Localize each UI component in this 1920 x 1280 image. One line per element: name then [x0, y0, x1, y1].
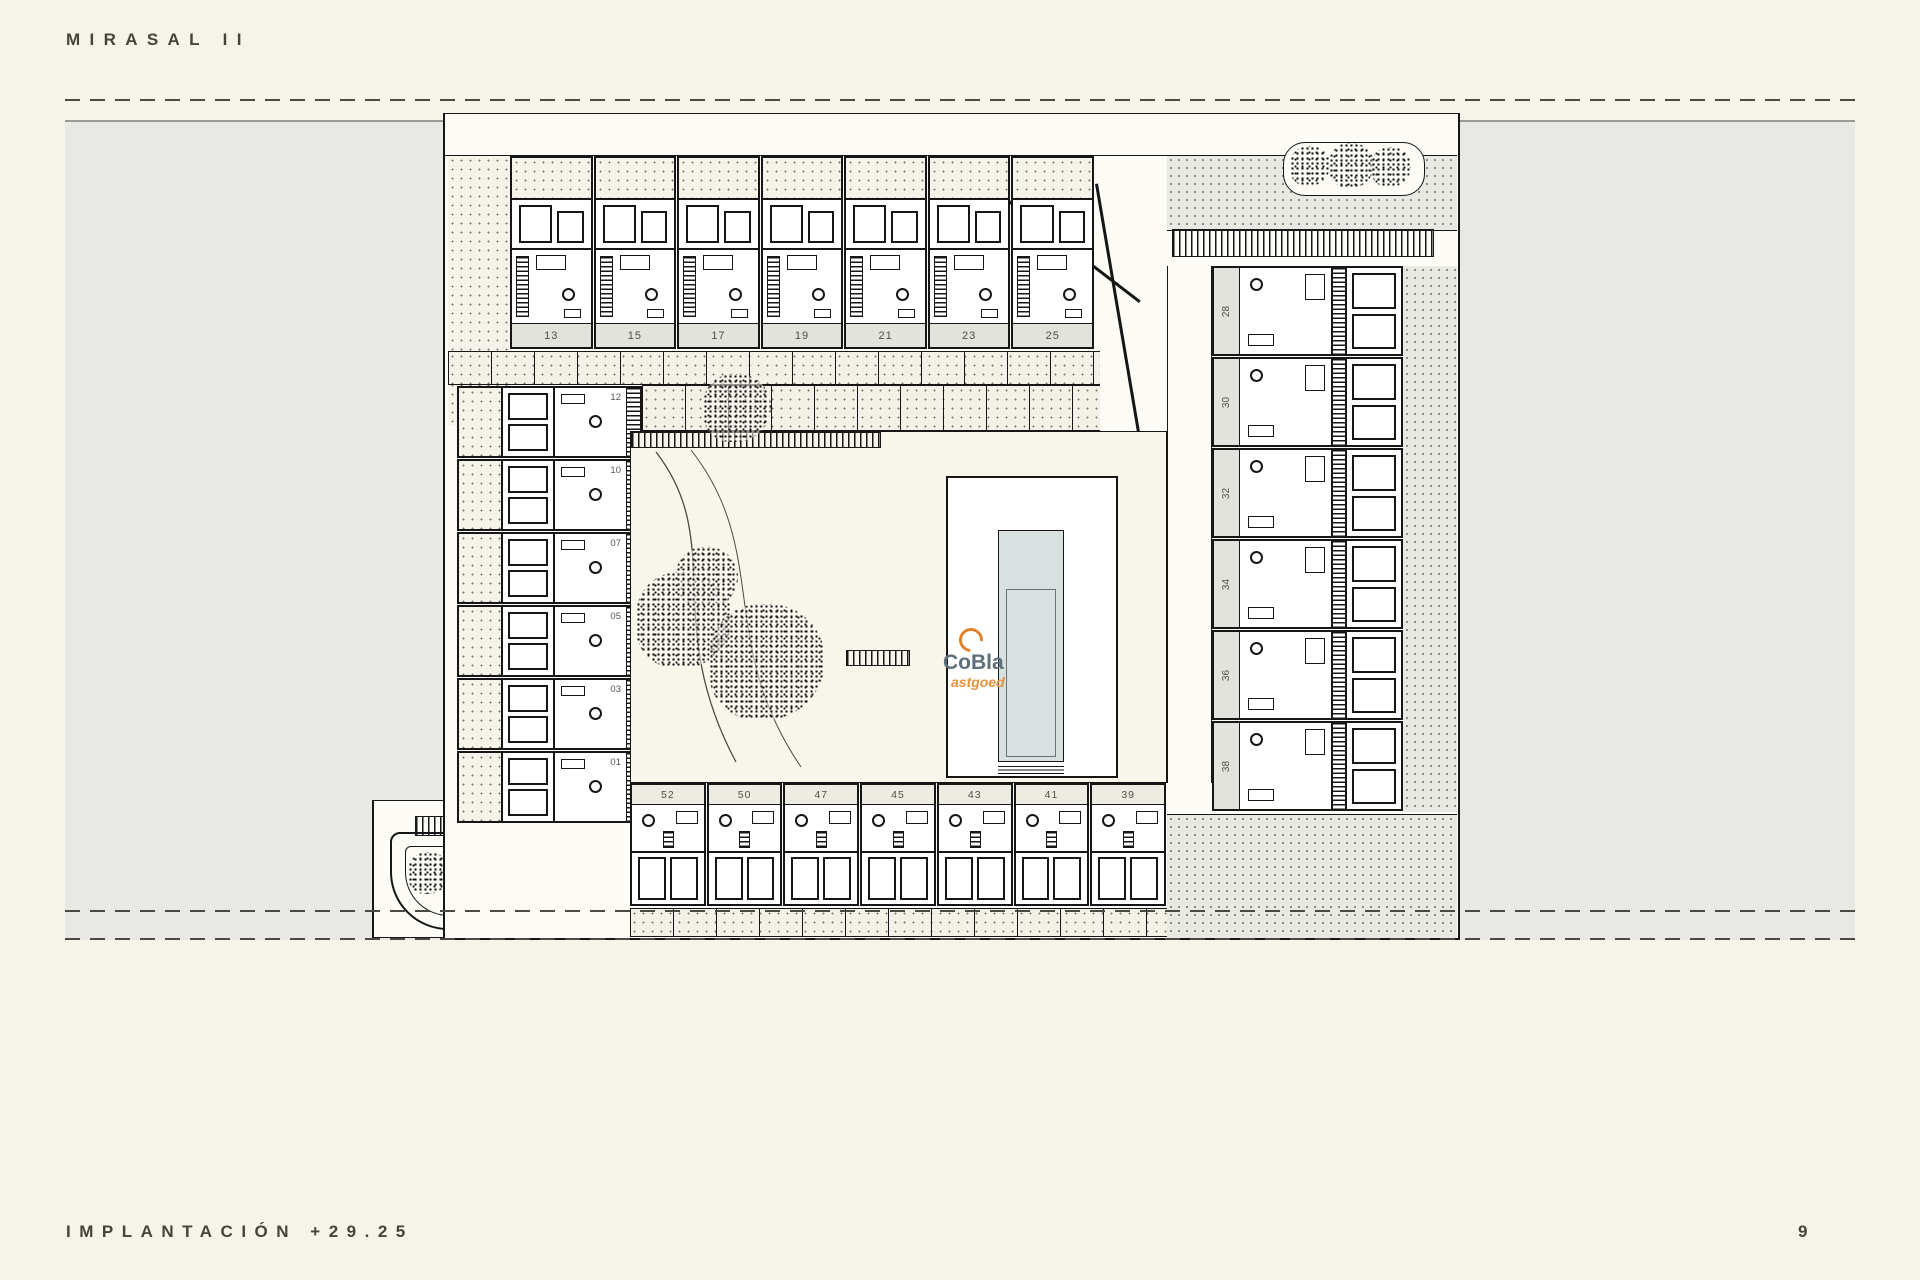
unit-living [709, 805, 781, 853]
unit-floorplan: 01 [457, 751, 642, 823]
unit-number: 28 [1221, 305, 1232, 316]
stairs-icon [739, 831, 750, 848]
table-icon [562, 288, 575, 301]
unit-column-right: 28 30 [1212, 266, 1403, 812]
unit-living [679, 250, 758, 323]
watermark-brand: CoBla [943, 652, 1005, 674]
stairs-icon [1333, 632, 1347, 718]
sofa-icon [1065, 309, 1082, 318]
bathroom [1037, 255, 1067, 270]
unit-floorplan: 15 [594, 156, 677, 349]
unit-bedrooms [1347, 268, 1401, 354]
sofa-icon [814, 309, 831, 318]
table-icon [1250, 369, 1263, 382]
stairs-icon [683, 256, 696, 317]
unit-bedrooms [709, 853, 781, 904]
unit-living [632, 805, 704, 853]
unit-number: 39 [1121, 789, 1135, 801]
unit-parking [459, 461, 503, 529]
unit-bedrooms [1347, 359, 1401, 445]
unit-patio [596, 158, 675, 200]
unit-number: 13 [544, 330, 558, 342]
unit-number: 36 [1221, 669, 1232, 680]
bathroom [1136, 811, 1158, 824]
unit-number: 15 [628, 330, 642, 342]
boundary-dashed-line-bottom-2 [65, 938, 1855, 940]
unit-bedrooms [512, 200, 591, 250]
stairs-icon [1333, 359, 1347, 445]
unit-floorplan: 45 [860, 783, 936, 906]
unit-patio [512, 158, 591, 200]
unit-floorplan: 21 [844, 156, 927, 349]
unit-bedrooms [763, 200, 842, 250]
unit-bedrooms [632, 853, 704, 904]
stairs-icon [893, 831, 904, 848]
unit-number-band: 39 [1092, 785, 1164, 805]
stairs-icon [1333, 450, 1347, 536]
table-icon [589, 561, 602, 574]
unit-number: 25 [1046, 330, 1060, 342]
unit-bedrooms [930, 200, 1009, 250]
unit-bedrooms [503, 607, 555, 675]
sofa-icon [564, 309, 581, 318]
stairs-icon [663, 831, 674, 848]
table-icon [795, 814, 808, 827]
unit-living [555, 534, 626, 602]
bathroom [536, 255, 566, 270]
bathroom [829, 811, 851, 824]
unit-bedrooms [596, 200, 675, 250]
unit-number-band: 30 [1214, 359, 1240, 445]
unit-number-band: 32 [1214, 450, 1240, 536]
unit-floorplan: 52 [630, 783, 706, 906]
stairs-icon [1123, 831, 1134, 848]
unit-living [763, 250, 842, 323]
unit-floorplan: 23 [928, 156, 1011, 349]
unit-number-band: 23 [930, 323, 1009, 347]
diagonal-boundary-line [1095, 184, 1142, 449]
bathroom [1305, 365, 1325, 391]
unit-number: 43 [968, 789, 982, 801]
bathroom [676, 811, 698, 824]
bathroom [1059, 811, 1081, 824]
unit-bedrooms [679, 200, 758, 250]
pergola-hatch-top-right [1172, 229, 1434, 257]
unit-number-band: 15 [596, 323, 675, 347]
stairs-icon [600, 256, 613, 317]
unit-living [1240, 450, 1333, 536]
unit-floorplan: 07 [457, 532, 642, 604]
bathroom [1305, 547, 1325, 573]
driveway-band-upper [448, 351, 1100, 385]
unit-living [1013, 250, 1092, 323]
unit-number-band: 45 [862, 785, 934, 805]
kitchen [1248, 789, 1274, 801]
unit-living [555, 388, 626, 456]
table-icon [949, 814, 962, 827]
bathroom [620, 255, 650, 270]
table-icon [896, 288, 909, 301]
unit-parking [459, 388, 503, 456]
unit-living [930, 250, 1009, 323]
unit-floorplan: 38 [1212, 721, 1403, 811]
table-icon [589, 634, 602, 647]
table-icon [589, 707, 602, 720]
unit-floorplan: 19 [761, 156, 844, 349]
stairs-icon [816, 831, 827, 848]
unit-parking [459, 534, 503, 602]
unit-floorplan: 03 [457, 678, 642, 750]
stairs-icon [1046, 831, 1057, 848]
unit-living [939, 805, 1011, 853]
table-icon [1250, 460, 1263, 473]
bathroom [703, 255, 733, 270]
pool-steps-icon [998, 766, 1064, 775]
unit-bedrooms [846, 200, 925, 250]
stairs-icon [970, 831, 981, 848]
site-band-right [1460, 120, 1855, 940]
table-icon [589, 488, 602, 501]
unit-bedrooms [1013, 200, 1092, 250]
stairs-icon [934, 256, 947, 317]
unit-parking [459, 753, 503, 821]
kitchen [1248, 425, 1274, 437]
kitchen [1248, 516, 1274, 528]
stairs-icon [1333, 723, 1347, 809]
page-title: MIRASAL II [66, 30, 251, 50]
unit-number-band: 52 [632, 785, 704, 805]
pool-inner-line [1006, 589, 1056, 757]
unit-number: 52 [661, 789, 675, 801]
unit-number-band: 47 [785, 785, 857, 805]
unit-bedrooms [503, 753, 555, 821]
unit-number-band: 36 [1214, 632, 1240, 718]
unit-number: 34 [1221, 578, 1232, 589]
central-courtyard: CoBla astgoed [630, 431, 1167, 783]
unit-floorplan: 25 [1011, 156, 1094, 349]
bathroom [1305, 274, 1325, 300]
unit-number: 45 [891, 789, 905, 801]
unit-bedrooms [1347, 450, 1401, 536]
kitchen [561, 467, 585, 477]
boundary-dashed-line-bottom [65, 910, 1855, 912]
unit-floorplan: 17 [677, 156, 760, 349]
road-right-of-courtyard [1167, 266, 1212, 783]
table-icon [979, 288, 992, 301]
bathroom [870, 255, 900, 270]
table-icon [1102, 814, 1115, 827]
unit-living [1240, 268, 1333, 354]
unit-bedrooms [1347, 723, 1401, 809]
unit-bedrooms [1016, 853, 1088, 904]
unit-living [1240, 632, 1333, 718]
unit-floorplan: 05 [457, 605, 642, 677]
kitchen [1248, 698, 1274, 710]
unit-number-band: 21 [846, 323, 925, 347]
unit-living [1240, 359, 1333, 445]
table-icon [729, 288, 742, 301]
stairs-icon [1333, 268, 1347, 354]
table-icon [812, 288, 825, 301]
unit-number: 21 [878, 330, 892, 342]
sofa-icon [731, 309, 748, 318]
unit-number: 50 [738, 789, 752, 801]
unit-number-band: 28 [1214, 268, 1240, 354]
paving-right-edge [1403, 266, 1457, 812]
boundary-dashed-line-top [65, 99, 1855, 101]
unit-patio [679, 158, 758, 200]
table-icon [589, 780, 602, 793]
unit-floorplan: 36 [1212, 630, 1403, 720]
unit-number-band: 38 [1214, 723, 1240, 809]
pool [998, 530, 1064, 762]
table-icon [1250, 551, 1263, 564]
pergola-hatch-pool-side [846, 650, 910, 666]
kitchen [1248, 334, 1274, 346]
unit-bedrooms [862, 853, 934, 904]
unit-floorplan: 10 [457, 459, 642, 531]
stairs-icon [1017, 256, 1030, 317]
unit-living [1092, 805, 1164, 853]
unit-floorplan: 39 [1090, 783, 1166, 906]
bathroom [954, 255, 984, 270]
driveway-band-lower [630, 908, 1167, 937]
unit-number-band: 25 [1013, 323, 1092, 347]
unit-bedrooms [503, 461, 555, 529]
unit-number: 41 [1045, 789, 1059, 801]
table-icon [1250, 733, 1263, 746]
unit-number-band: 13 [512, 323, 591, 347]
bathroom [1305, 638, 1325, 664]
drawing-title: IMPLANTACIÓN +29.25 [66, 1222, 414, 1242]
sofa-icon [898, 309, 915, 318]
bathroom [906, 811, 928, 824]
table-icon [1026, 814, 1039, 827]
stairs-icon [767, 256, 780, 317]
unit-floorplan: 12 [457, 386, 642, 458]
table-icon [645, 288, 658, 301]
table-icon [589, 415, 602, 428]
bathroom [983, 811, 1005, 824]
unit-number: 38 [1221, 760, 1232, 771]
unit-floorplan: 50 [707, 783, 783, 906]
unit-floorplan: 13 [510, 156, 593, 349]
unit-living [846, 250, 925, 323]
unit-living [1016, 805, 1088, 853]
unit-living [555, 461, 626, 529]
unit-number: 32 [1221, 487, 1232, 498]
unit-living [555, 680, 626, 748]
paving-bottom-right [1167, 814, 1457, 938]
stairs-icon [1333, 541, 1347, 627]
unit-parking [459, 680, 503, 748]
unit-living [512, 250, 591, 323]
unit-floorplan: 28 [1212, 266, 1403, 356]
unit-patio [846, 158, 925, 200]
page-number: 9 [1798, 1222, 1807, 1242]
table-icon [1063, 288, 1076, 301]
bathroom [1305, 729, 1325, 755]
unit-bedrooms [939, 853, 1011, 904]
unit-floorplan: 41 [1014, 783, 1090, 906]
unit-number: 23 [962, 330, 976, 342]
sofa-icon [647, 309, 664, 318]
unit-number: 17 [711, 330, 725, 342]
unit-number-band: 50 [709, 785, 781, 805]
unit-living [785, 805, 857, 853]
table-icon [719, 814, 732, 827]
watermark: CoBla astgoed [943, 628, 1005, 690]
unit-number-band: 41 [1016, 785, 1088, 805]
unit-living [596, 250, 675, 323]
unit-living [862, 805, 934, 853]
unit-patio [763, 158, 842, 200]
sofa-icon [981, 309, 998, 318]
kitchen [561, 613, 585, 623]
unit-patio [930, 158, 1009, 200]
unit-floorplan: 34 [1212, 539, 1403, 629]
unit-bedrooms [503, 534, 555, 602]
unit-number: 19 [795, 330, 809, 342]
kitchen [561, 540, 585, 550]
kitchen [561, 759, 585, 769]
unit-bedrooms [503, 680, 555, 748]
kitchen [561, 394, 585, 404]
unit-number-band: 43 [939, 785, 1011, 805]
unit-living [555, 607, 626, 675]
unit-number: 47 [814, 789, 828, 801]
stairs-icon [850, 256, 863, 317]
unit-floorplan: 47 [783, 783, 859, 906]
unit-row-top: 13 15 [510, 156, 1095, 349]
table-icon [872, 814, 885, 827]
unit-living [1240, 541, 1333, 627]
table-icon [1250, 278, 1263, 291]
kitchen [561, 686, 585, 696]
unit-bedrooms [785, 853, 857, 904]
unit-bedrooms [1347, 541, 1401, 627]
watermark-brand-sub: astgoed [951, 674, 1005, 690]
site-plan: 13 15 [443, 113, 1460, 940]
unit-parking [459, 607, 503, 675]
table-icon [642, 814, 655, 827]
unit-number-band: 19 [763, 323, 842, 347]
bathroom [752, 811, 774, 824]
stairs-icon [516, 256, 529, 317]
unit-floorplan: 32 [1212, 448, 1403, 538]
unit-number-band: 17 [679, 323, 758, 347]
unit-number: 30 [1221, 396, 1232, 407]
unit-number-band: 34 [1214, 541, 1240, 627]
bathroom [1305, 456, 1325, 482]
table-icon [1250, 642, 1263, 655]
unit-bedrooms [1092, 853, 1164, 904]
unit-floorplan: 30 [1212, 357, 1403, 447]
unit-column-left: 12 10 [457, 386, 642, 824]
unit-bedrooms [503, 388, 555, 456]
unit-row-bottom: 52 50 [630, 783, 1167, 906]
unit-bedrooms [1347, 632, 1401, 718]
kitchen [1248, 607, 1274, 619]
unit-floorplan: 43 [937, 783, 1013, 906]
bathroom [787, 255, 817, 270]
unit-patio [1013, 158, 1092, 200]
unit-living [1240, 723, 1333, 809]
unit-living [555, 753, 626, 821]
drawing-sheet: MIRASAL II [0, 0, 1920, 1280]
